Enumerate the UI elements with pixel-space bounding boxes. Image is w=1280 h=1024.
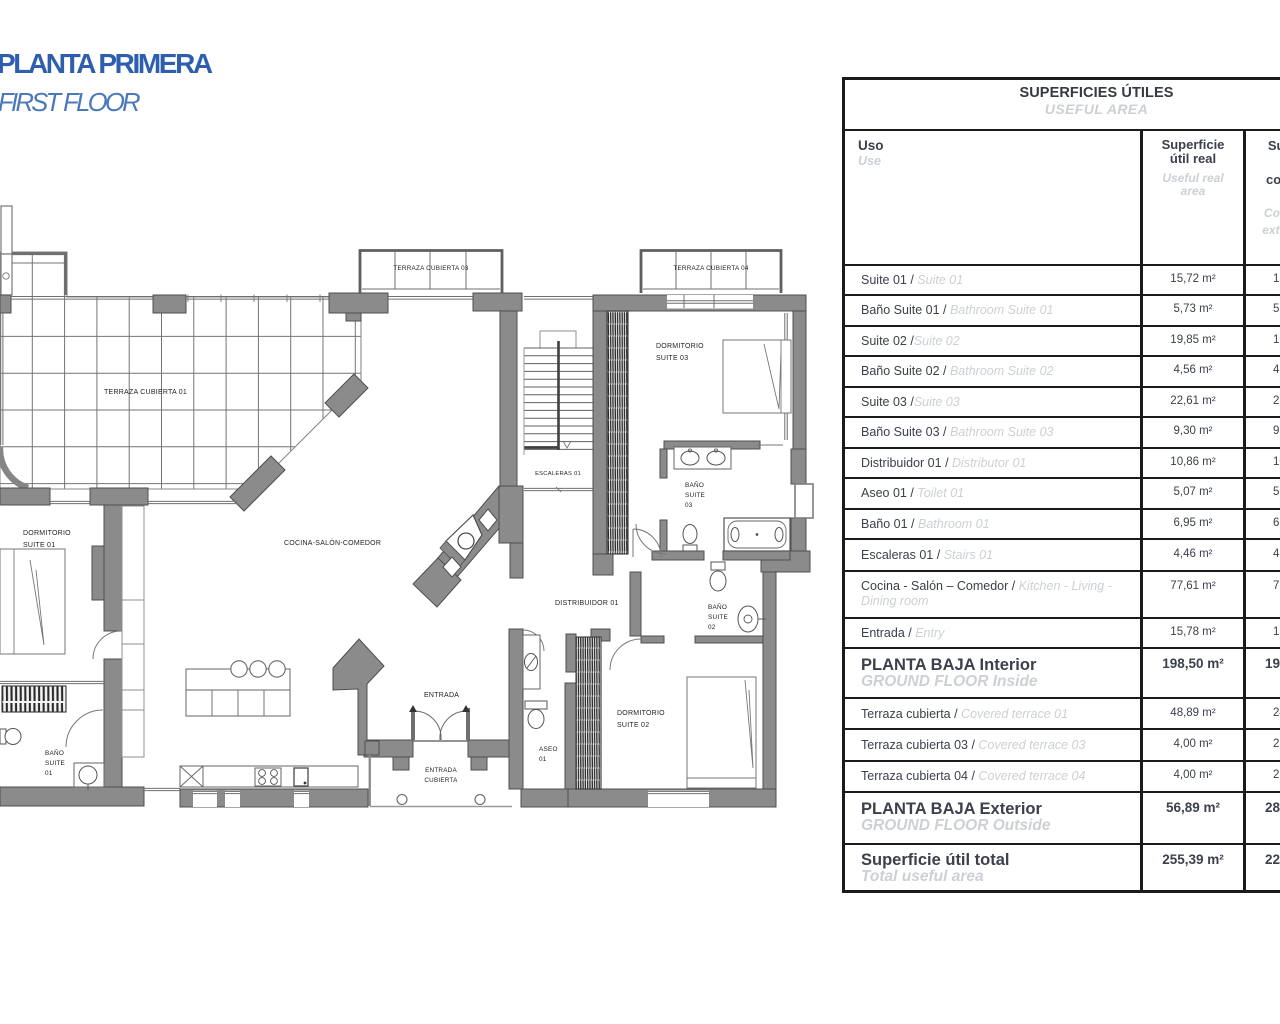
svg-text:03: 03 — [685, 502, 693, 509]
svg-text:COCINA-SALÓN-COMEDOR: COCINA-SALÓN-COMEDOR — [284, 538, 381, 547]
svg-text:BAÑO: BAÑO — [708, 602, 727, 611]
svg-text:ESCALERAS 01: ESCALERAS 01 — [535, 471, 581, 477]
svg-text:TERRAZA CUBIERTA 03: TERRAZA CUBIERTA 03 — [393, 265, 468, 272]
svg-text:DISTRIBUIDOR 01: DISTRIBUIDOR 01 — [555, 600, 619, 607]
svg-text:SUITE 03: SUITE 03 — [656, 355, 688, 362]
svg-text:ENTRADA: ENTRADA — [424, 692, 459, 699]
svg-text:01: 01 — [539, 756, 547, 763]
svg-text:SUITE: SUITE — [708, 614, 728, 621]
svg-text:ASEO: ASEO — [539, 746, 558, 753]
svg-text:SUITE: SUITE — [45, 760, 65, 767]
svg-text:TERRAZA CUBIERTA 04: TERRAZA CUBIERTA 04 — [673, 265, 748, 272]
svg-text:02: 02 — [708, 624, 716, 631]
svg-text:ENTRADA: ENTRADA — [425, 767, 457, 774]
svg-text:DORMITORIO: DORMITORIO — [617, 710, 665, 717]
svg-text:DORMITORIO: DORMITORIO — [23, 530, 71, 537]
svg-text:SUITE 01: SUITE 01 — [23, 542, 55, 549]
svg-text:BAÑO: BAÑO — [685, 480, 704, 489]
svg-text:01: 01 — [45, 770, 53, 777]
svg-text:DORMITORIO: DORMITORIO — [656, 343, 704, 350]
svg-text:TERRAZA CUBIERTA 01: TERRAZA CUBIERTA 01 — [104, 389, 187, 396]
svg-text:CUBIERTA: CUBIERTA — [424, 777, 458, 784]
svg-text:SUITE: SUITE — [685, 492, 705, 499]
svg-text:BAÑO: BAÑO — [45, 748, 64, 757]
svg-text:SUITE 02: SUITE 02 — [617, 722, 649, 729]
